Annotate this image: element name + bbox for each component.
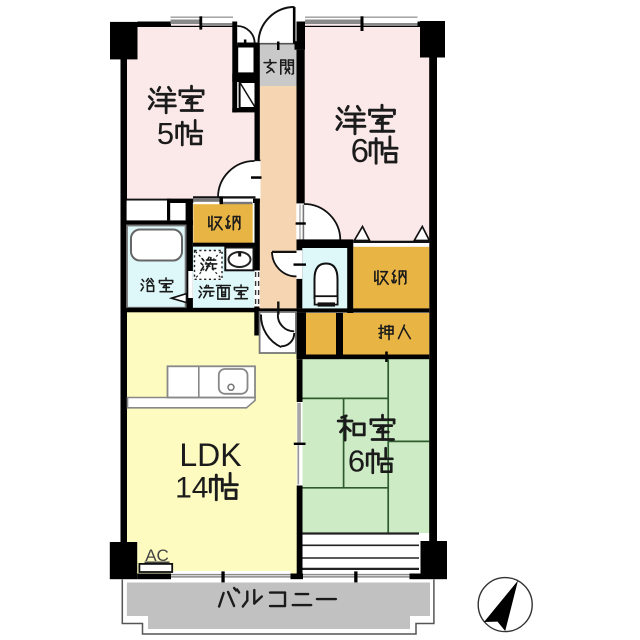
svg-text:5: 5 — [157, 116, 174, 151]
svg-text:14: 14 — [175, 471, 208, 504]
svg-text:LDK: LDK — [179, 437, 241, 473]
svg-text:6: 6 — [351, 132, 369, 169]
svg-text:6: 6 — [348, 444, 365, 479]
